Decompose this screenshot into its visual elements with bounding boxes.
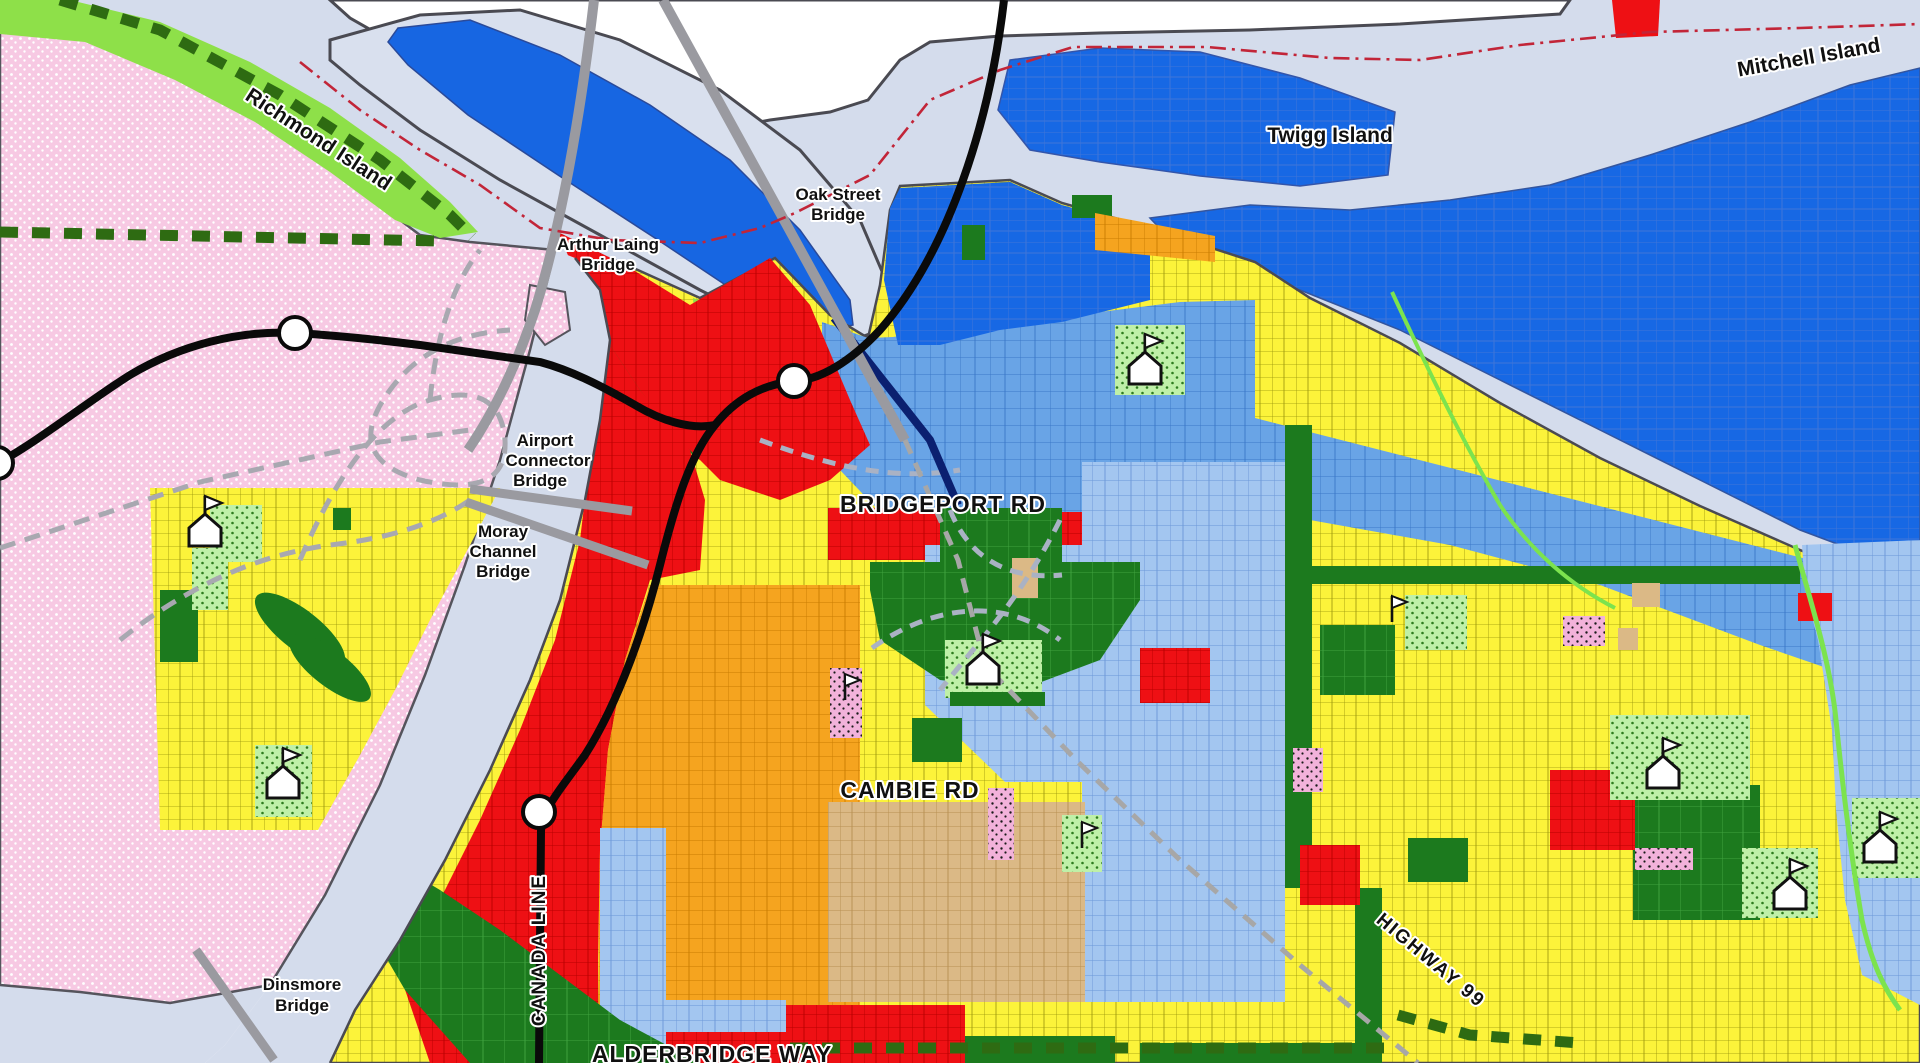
svg-text:Connector: Connector [506, 451, 591, 470]
zone-tan-s2 [1618, 628, 1638, 650]
label-canada-line: CANADA LINE [529, 874, 550, 1026]
zone-pinkdot-2 [1563, 616, 1605, 646]
zone-green-block1 [1320, 625, 1395, 695]
zone-pinkdot-3 [1635, 848, 1693, 870]
zone-green-block4 [962, 225, 985, 260]
label-cambie-rd: CAMBIE RD [840, 777, 979, 803]
svg-text:Bridge: Bridge [513, 471, 567, 490]
transit-station-icon [0, 447, 13, 479]
svg-text:Dinsmore: Dinsmore [263, 975, 341, 994]
svg-text:Channel: Channel [469, 542, 536, 561]
label-moray-channel-bridge: Moray Channel Bridge [469, 522, 536, 581]
label-twigg-island: Twigg Island [1267, 124, 1393, 147]
zone-tan-main [828, 802, 1085, 1002]
zone-tan-s1 [1632, 583, 1660, 607]
burkeville-green1 [333, 508, 351, 530]
transit-station-icon [778, 365, 810, 397]
zone-green-block2 [1408, 838, 1468, 882]
zone-green-corridor-shell [1285, 425, 1312, 888]
svg-text:Bridge: Bridge [811, 205, 865, 224]
transit-station-icon [523, 796, 555, 828]
zone-pinkdot-1 [988, 788, 1014, 860]
map-canvas[interactable]: Richmond Island Twigg Island Mitchell Is… [0, 0, 1920, 1063]
zone-red-s1 [1140, 648, 1210, 703]
svg-text:Bridge: Bridge [581, 255, 635, 274]
svg-text:Airport: Airport [517, 431, 574, 450]
label-bridgeport-rd: BRIDGEPORT RD [840, 491, 1046, 517]
zone-pinkdot-4 [1293, 748, 1323, 792]
svg-text:Arthur Laing: Arthur Laing [557, 235, 659, 254]
svg-text:Oak Street: Oak Street [795, 185, 880, 204]
zone-blue-light-no4 [1082, 462, 1285, 1002]
burkeville-park-dotted2 [192, 548, 228, 610]
zone-green-sliver-ne [1072, 195, 1112, 218]
zoning-map-svg[interactable]: Richmond Island Twigg Island Mitchell Is… [0, 0, 1920, 1063]
svg-text:Bridge: Bridge [476, 562, 530, 581]
svg-text:Moray: Moray [478, 522, 529, 541]
transit-station-icon [279, 317, 311, 349]
svg-text:Bridge: Bridge [275, 996, 329, 1015]
zone-red-s4 [1300, 845, 1360, 905]
label-alderbridge-way: ALDERBRIDGE WAY [592, 1041, 832, 1063]
park-dotted-cambie-band [950, 692, 1045, 706]
zone-blue-light-row [666, 1000, 786, 1032]
zone-green-corridor-hwy [1355, 888, 1382, 1063]
zone-green-block3 [912, 718, 962, 762]
park-dotted-e4 [1405, 595, 1467, 650]
